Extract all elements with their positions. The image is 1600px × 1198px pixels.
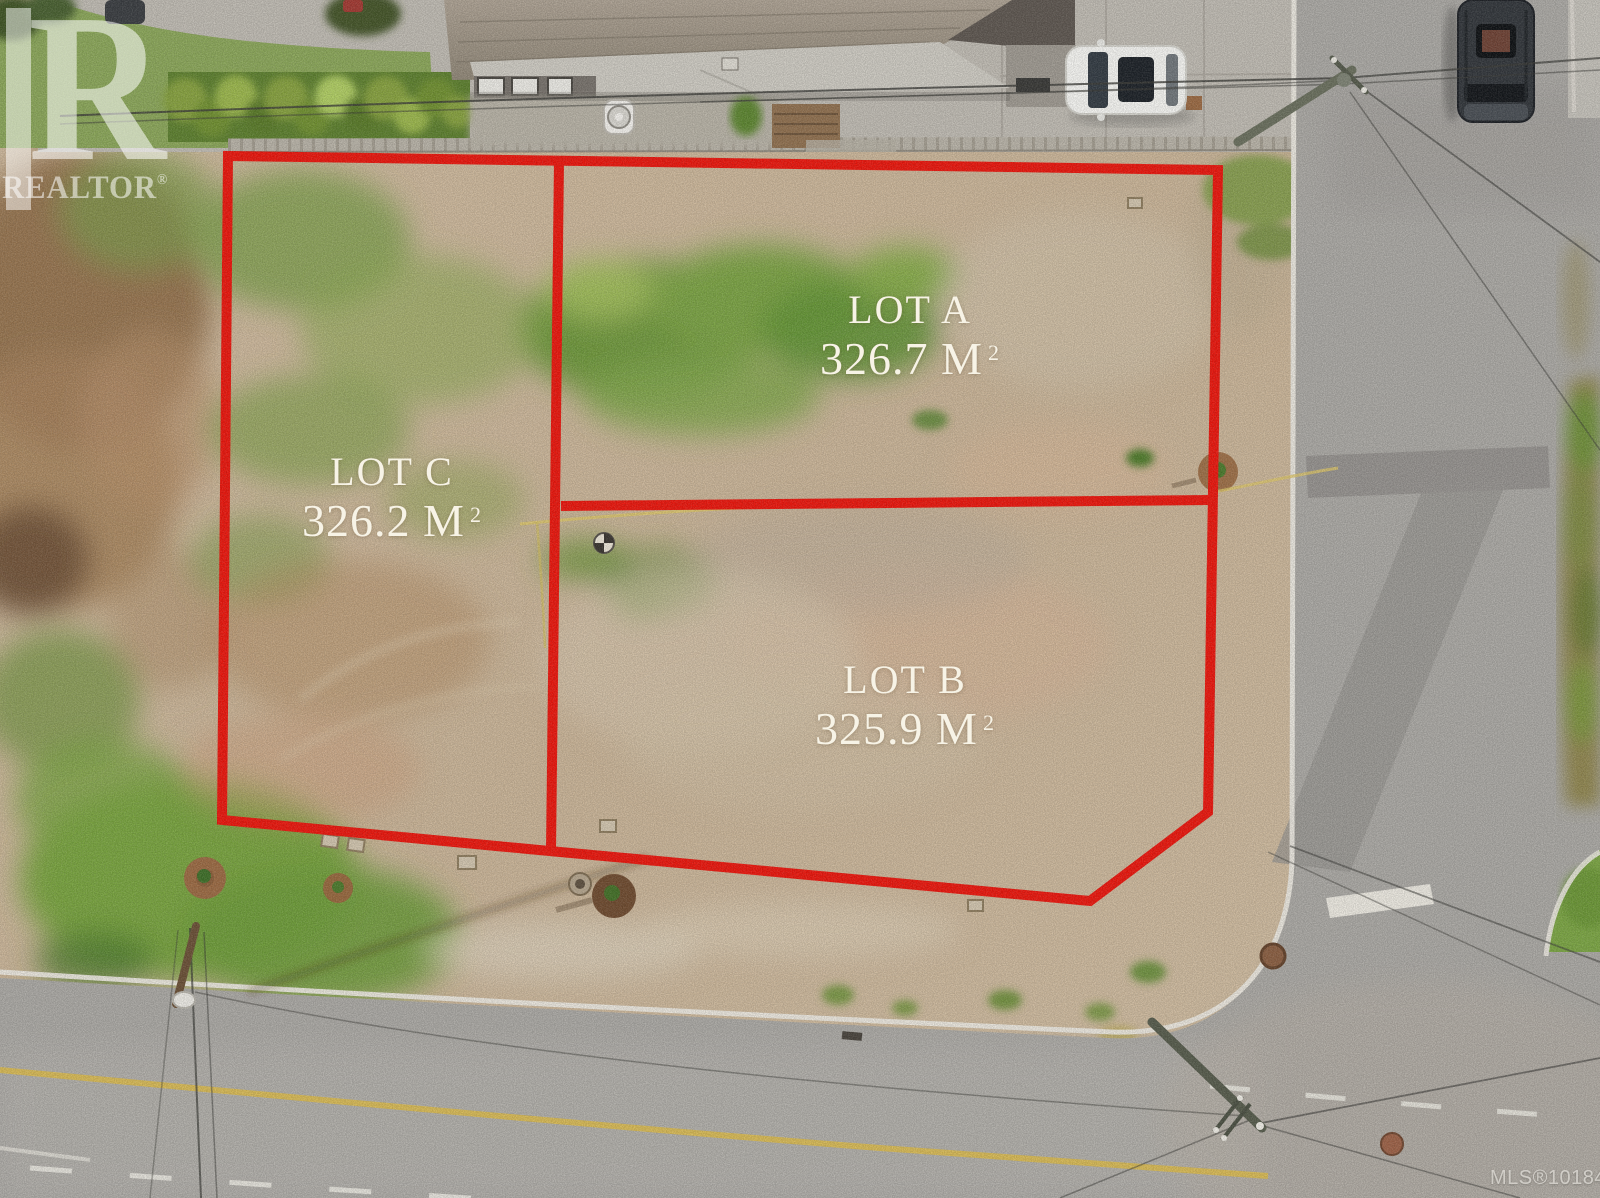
photo-grain-light (0, 0, 1600, 1198)
aerial-scene (0, 0, 1600, 1198)
aerial-listing-photo: LOT A 326.7 M2 LOT B 325.9 M2 LOT C 326.… (0, 0, 1600, 1198)
